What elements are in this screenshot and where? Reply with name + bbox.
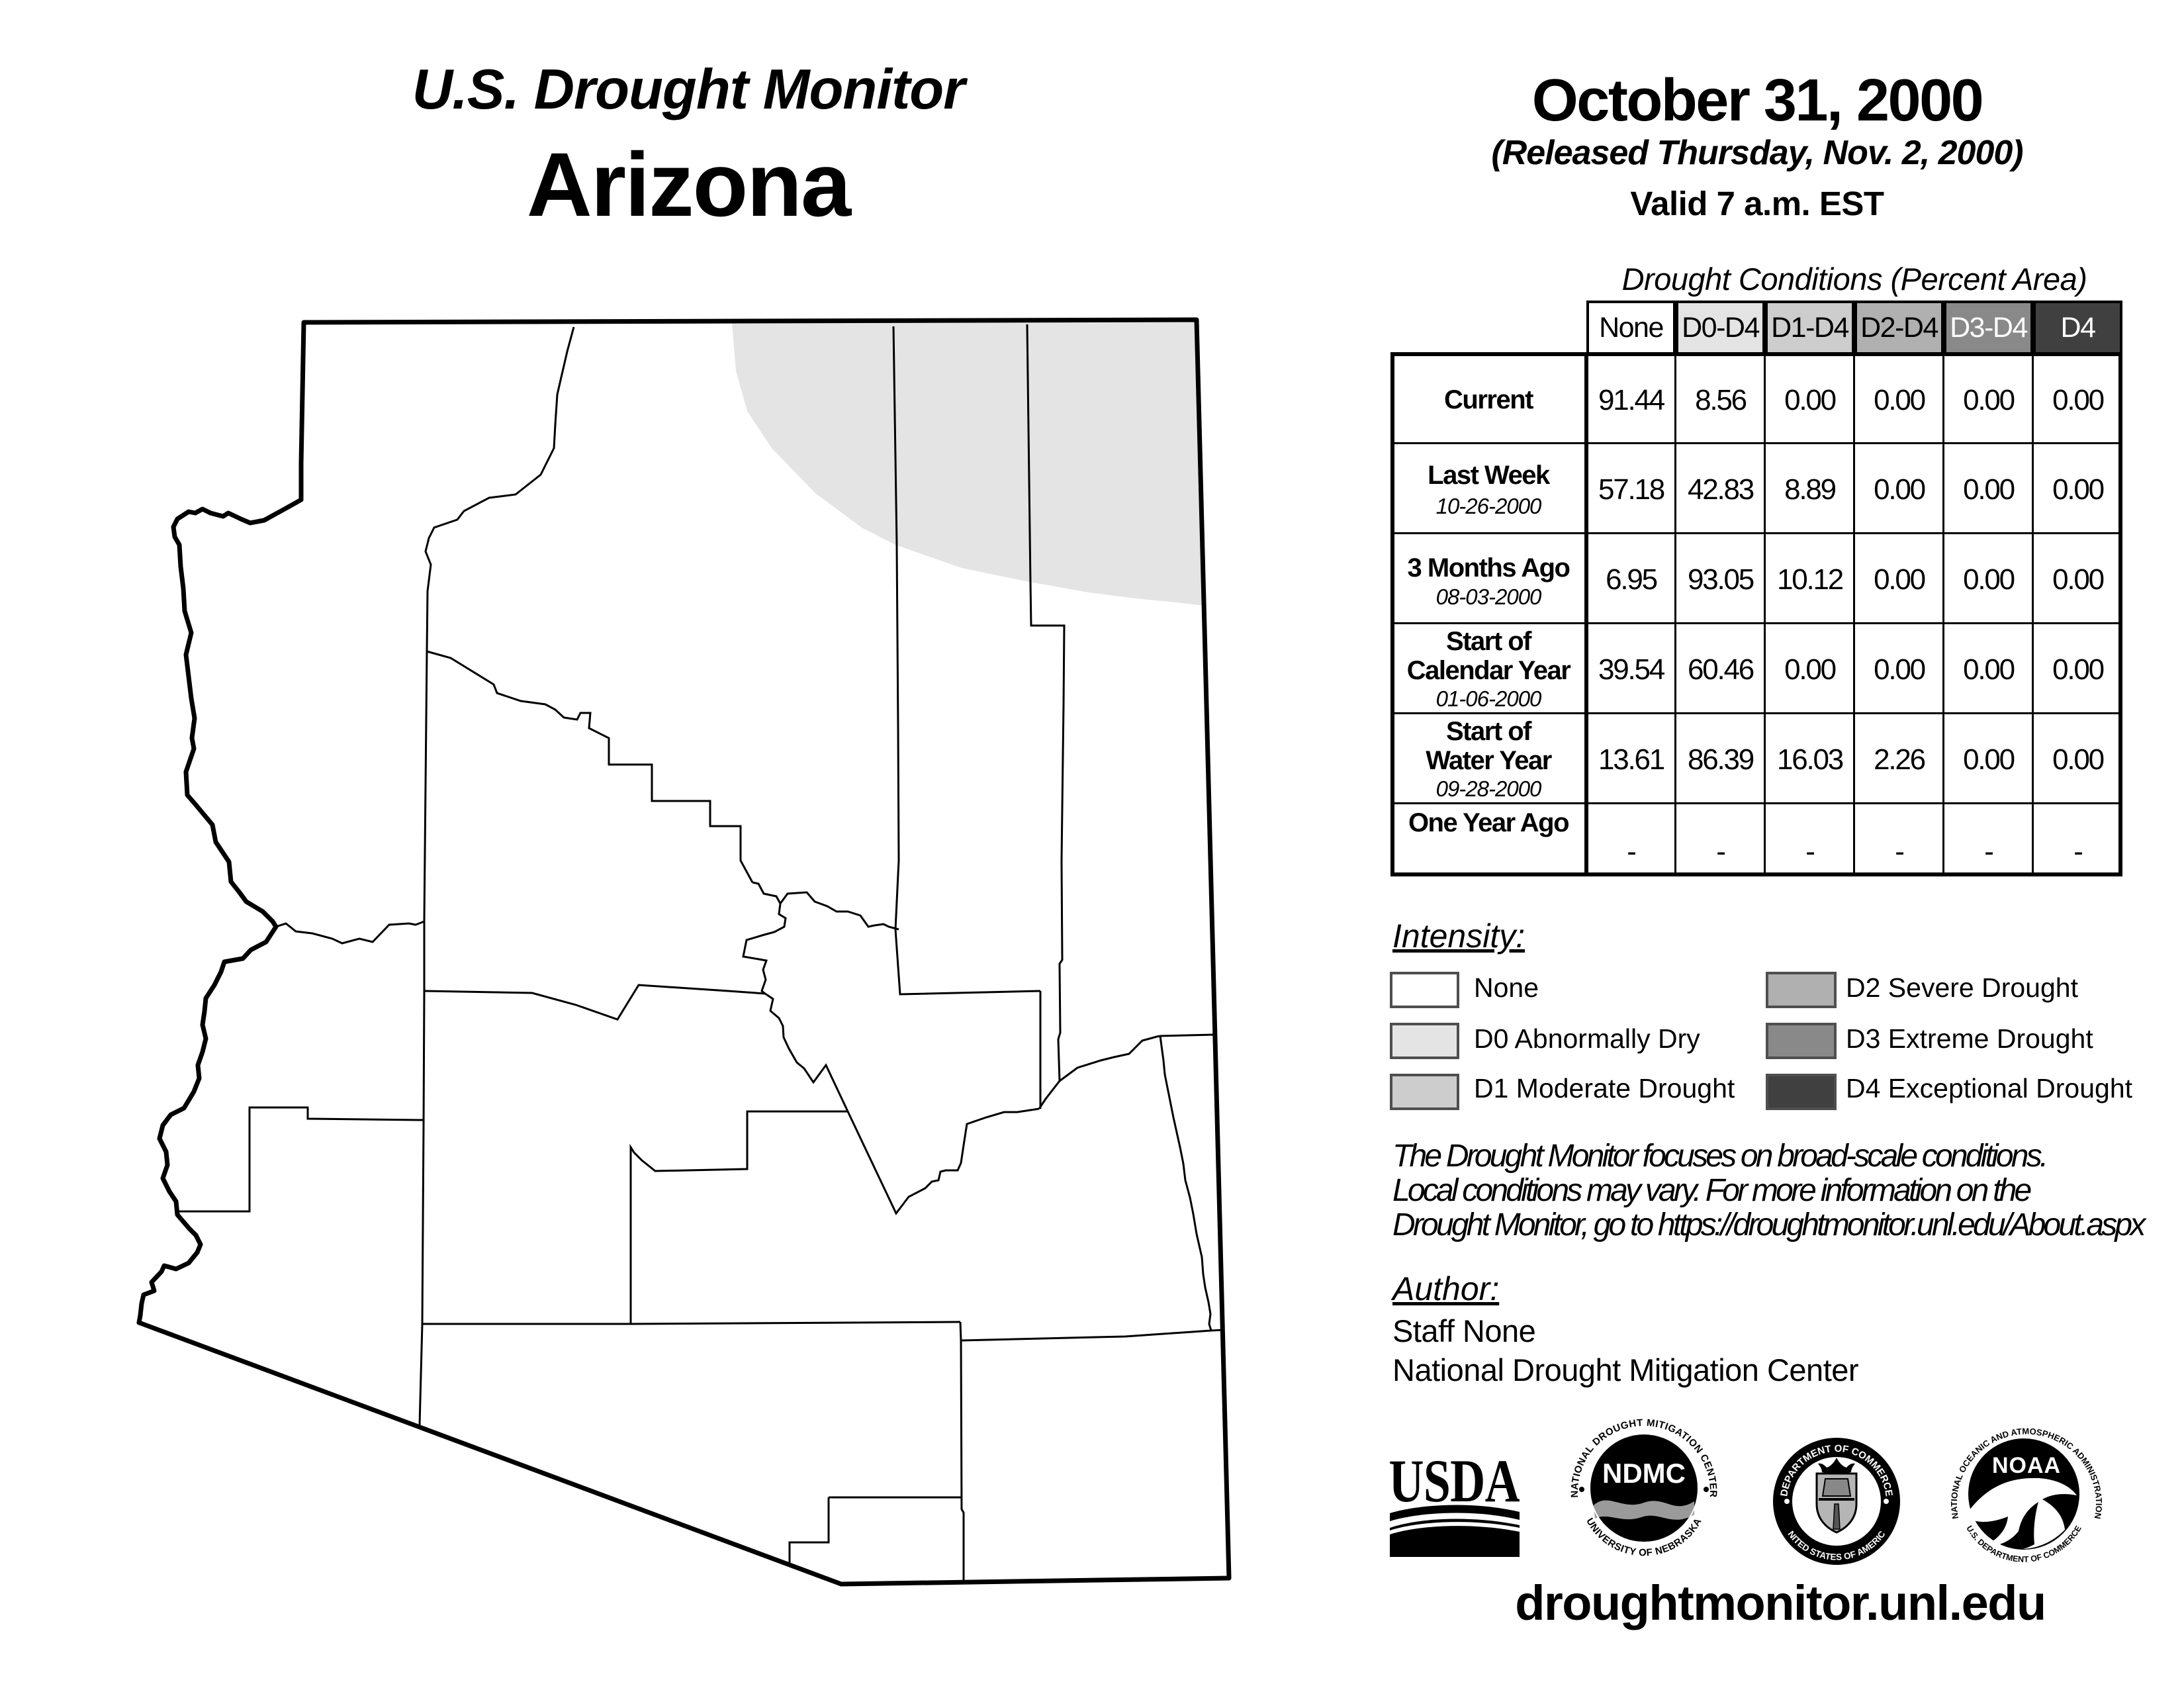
svg-text:NOAA: NOAA [1992,1453,2061,1478]
svg-text:NDMC: NDMC [1602,1458,1686,1489]
